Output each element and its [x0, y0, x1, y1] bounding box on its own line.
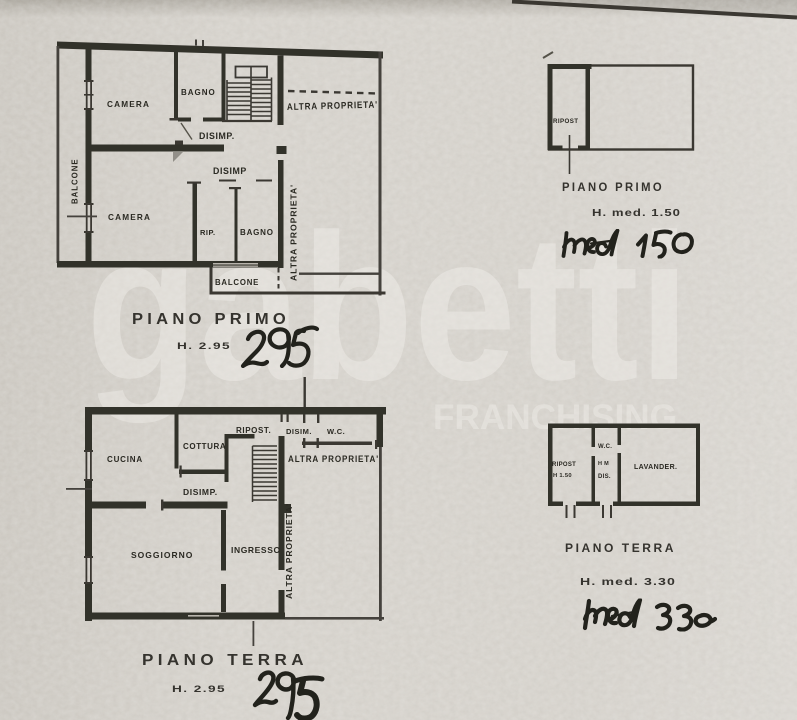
- svg-text:PIANO PRIMO: PIANO PRIMO: [562, 180, 664, 194]
- svg-text:ALTRA PROPRIETA': ALTRA PROPRIETA': [290, 184, 299, 281]
- svg-text:H. med. 3.30: H. med. 3.30: [580, 577, 676, 588]
- svg-text:BALCONE: BALCONE: [215, 278, 259, 287]
- svg-text:BAGNO: BAGNO: [181, 88, 216, 97]
- svg-text:CUCINA: CUCINA: [107, 455, 143, 464]
- svg-text:INGRESSO: INGRESSO: [231, 545, 281, 555]
- svg-text:BAGNO: BAGNO: [240, 228, 274, 237]
- svg-text:LAVANDER.: LAVANDER.: [634, 464, 677, 471]
- svg-text:RIP.: RIP.: [200, 228, 216, 237]
- svg-text:RIPOST: RIPOST: [553, 118, 578, 125]
- svg-text:PIANO PRIMO: PIANO PRIMO: [132, 311, 290, 328]
- svg-text:H 1.50: H 1.50: [553, 473, 572, 479]
- svg-text:ALTRA PROPRIETA': ALTRA PROPRIETA': [288, 454, 379, 464]
- svg-text:CAMERA: CAMERA: [107, 100, 150, 109]
- svg-text:CAMERA: CAMERA: [108, 213, 151, 222]
- svg-text:RIPOST.: RIPOST.: [236, 426, 271, 435]
- svg-text:BALCONE: BALCONE: [71, 158, 80, 204]
- svg-text:PIANO TERRA: PIANO TERRA: [142, 652, 308, 669]
- svg-text:ALTRA PROPRIETA': ALTRA PROPRIETA': [285, 503, 294, 599]
- svg-text:H M: H M: [598, 461, 609, 467]
- svg-text:H. med. 1.50: H. med. 1.50: [592, 208, 681, 219]
- svg-text:PIANO TERRA: PIANO TERRA: [565, 541, 676, 555]
- svg-text:H. 2.95: H. 2.95: [177, 341, 231, 352]
- svg-text:COTTURA: COTTURA: [183, 442, 226, 451]
- svg-text:RIPOST: RIPOST: [552, 462, 576, 468]
- svg-text:H. 2.95: H. 2.95: [172, 684, 226, 695]
- svg-text:DISIMP.: DISIMP.: [183, 487, 218, 497]
- svg-text:DISIMP: DISIMP: [213, 166, 247, 176]
- svg-text:DISIMP.: DISIMP.: [199, 131, 235, 141]
- svg-text:W.C.: W.C.: [327, 427, 345, 436]
- svg-text:DIS.: DIS.: [598, 474, 611, 480]
- svg-text:W.C.: W.C.: [598, 444, 612, 450]
- svg-text:SOGGIORNO: SOGGIORNO: [131, 550, 193, 560]
- svg-text:gabetti: gabetti: [86, 192, 690, 424]
- svg-text:DISIM.: DISIM.: [286, 427, 312, 436]
- svg-text:FRANCHISING: FRANCHISING: [433, 398, 677, 437]
